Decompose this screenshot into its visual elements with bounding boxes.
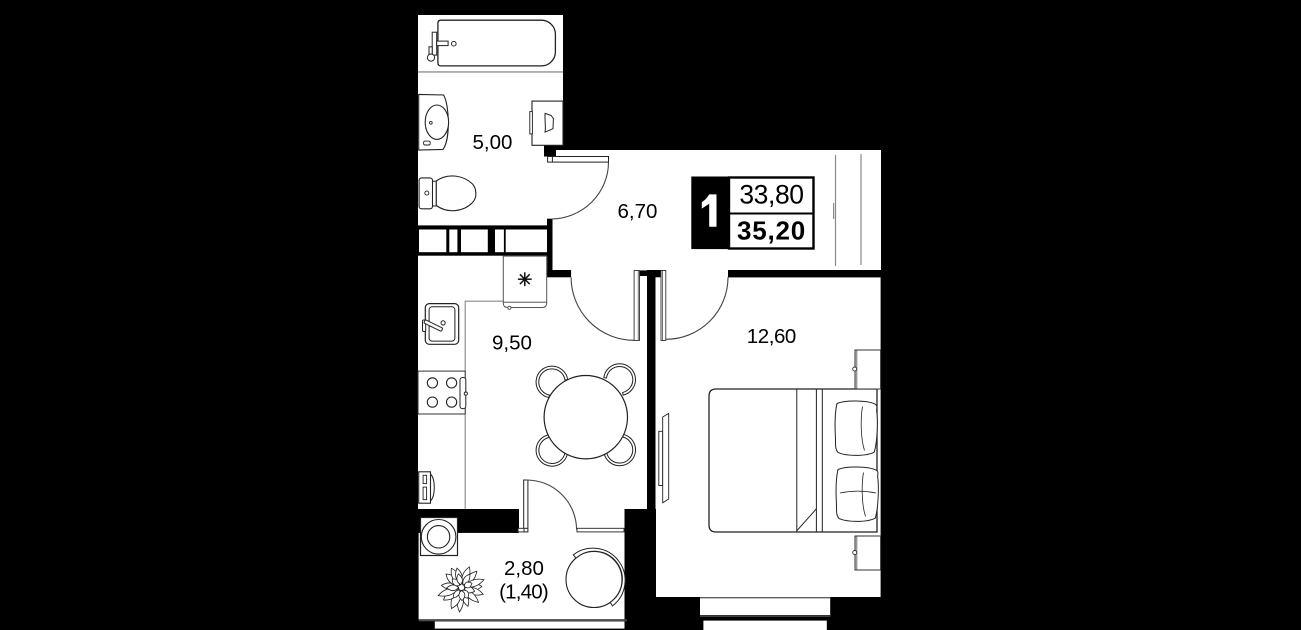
svg-text:5,00: 5,00 — [473, 131, 513, 154]
svg-text:(1,40): (1,40) — [499, 581, 548, 604]
svg-text:12,60: 12,60 — [747, 325, 796, 348]
svg-text:35,20: 35,20 — [737, 216, 806, 246]
svg-text:6,70: 6,70 — [618, 200, 658, 223]
svg-text:33,80: 33,80 — [739, 180, 803, 210]
svg-text:9,50: 9,50 — [492, 332, 532, 355]
svg-text:2,80: 2,80 — [504, 557, 544, 580]
